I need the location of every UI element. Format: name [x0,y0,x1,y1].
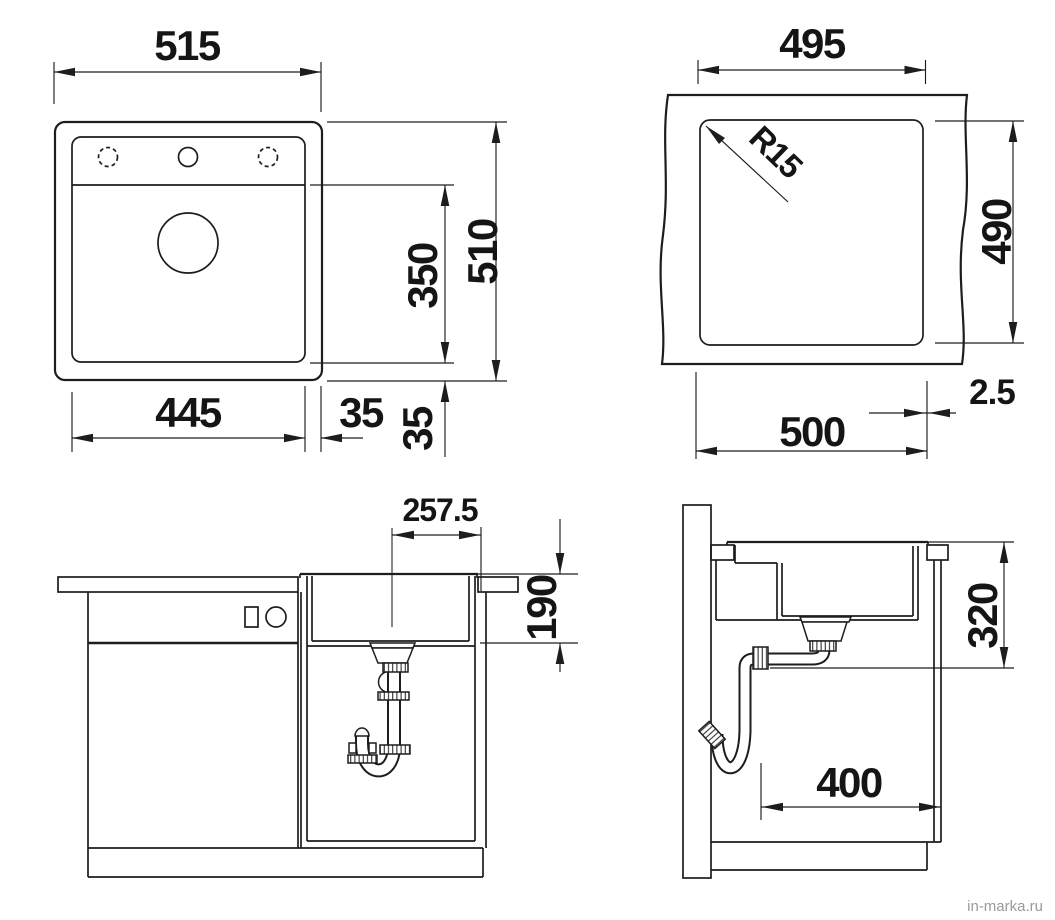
dim-label-490: 490 [973,199,1020,265]
drawing-page: 515 510 350 35 [0,0,1055,920]
pipe-coupling [348,755,377,763]
strainer-cup [372,648,413,663]
dim-label-400: 400 [816,759,882,806]
strainer-nut [383,663,408,672]
sink-technical-drawing: 515 510 350 35 [0,0,1055,920]
dim-label-2.5: 2.5 [969,373,1015,412]
dim-label-320: 320 [959,583,1006,649]
dim-label-190: 190 [518,575,565,641]
pipe-coupling [380,745,410,754]
dim-label-500: 500 [779,408,845,455]
dim-label-35-right: 35 [339,389,384,436]
background [0,0,1055,920]
watermark: in-marka.ru [967,898,1043,915]
dim-label-510: 510 [459,219,506,285]
coupling-lug [369,743,376,753]
strainer-nut [810,641,836,651]
strainer-cup [802,622,847,641]
dim-label-445: 445 [155,389,222,436]
pipe-coupling [378,692,409,700]
coupling-lug [349,743,356,753]
dim-label-35-front: 35 [394,406,441,451]
dim-label-257.5: 257.5 [402,492,477,528]
dim-label-515: 515 [154,22,221,69]
pipe-coupling [753,647,768,669]
dim-label-350: 350 [399,243,446,309]
dim-label-495: 495 [779,20,846,67]
